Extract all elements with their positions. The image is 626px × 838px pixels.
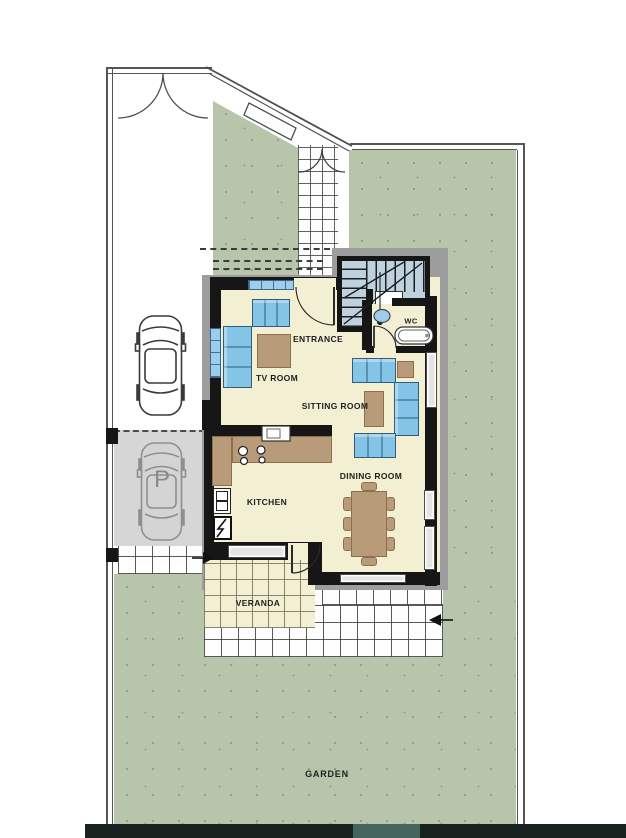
plot-boundary-top-gate-outer [106,67,212,69]
appliance-burner [216,491,228,501]
floor-plan: ENTRANCE TV ROOM SITTING ROOM DINING ROO… [0,0,626,838]
sitting-room-label: SITTING ROOM [302,401,369,411]
wc-bottom-wall-a [366,346,374,353]
entrance-label: ENTRANCE [293,334,343,344]
sitting-sofa-right [394,382,419,436]
plot-boundary-topright-outer [350,143,525,145]
dining-window [340,574,406,583]
parking-p-label: P [154,466,170,494]
boundary-pier [106,548,118,562]
stair-treads-upper [366,261,425,292]
plot-boundary-right-inner [517,150,518,827]
driveway-gate-arc [118,73,163,118]
sitting-sofa-bottom [354,433,396,458]
dining-side-window-1 [424,490,435,520]
overhang-dashed-line [213,260,323,262]
electrical-box [213,516,232,540]
appliance-burner [216,501,228,511]
dining-chair [361,557,377,566]
dining-chair [386,537,395,551]
tv-room-rug [257,334,291,368]
plot-boundary-left-inner [112,67,113,827]
boundary-pier [106,428,118,444]
bottom-road-strip-segment [353,824,420,838]
tv-room-label: TV ROOM [256,373,298,383]
wc-floor [370,304,426,348]
veranda-covered-tiles [204,558,315,628]
sitting-side-table [397,361,414,378]
wc-label: WC [404,317,417,326]
tv-room-window [248,280,294,290]
plot-boundary-topright-inner [352,149,517,150]
kitchen-door-opening [288,543,308,560]
kitchen-window [228,545,286,558]
veranda-label: VERANDA [236,598,280,608]
driveway-car [136,316,186,415]
side-walkway-tiles [118,546,204,574]
dining-room-label: DINING ROOM [340,471,402,481]
plot-boundary-top-gate-inner [106,73,212,74]
kitchen-counter-left [212,436,232,486]
kitchen-counter-top [232,436,332,463]
dining-side-window-2 [424,526,435,570]
dining-chair [361,482,377,491]
overhang-dashed-line [200,248,330,250]
tv-room-sofa-small [252,299,290,327]
dining-chair [386,517,395,531]
tv-room-side-window [210,328,221,378]
garden-top-left [213,101,299,277]
dining-chair [386,497,395,511]
tv-room-sofa-large [223,326,252,388]
overhang-dashed-line [213,268,323,270]
kitchen-label: KITCHEN [247,497,287,507]
wc-left-wall [362,300,372,350]
sitting-room-window [426,352,437,408]
plot-boundary-left-outer [106,67,108,827]
kitchen-appliance [213,488,231,514]
dining-table [351,491,387,557]
garden-label: GARDEN [305,769,349,779]
driveway-gate-arc [163,73,208,118]
entrance-door-opening [294,278,336,290]
plot-boundary-right-outer [523,143,525,827]
sitting-sofa-top [352,358,396,383]
